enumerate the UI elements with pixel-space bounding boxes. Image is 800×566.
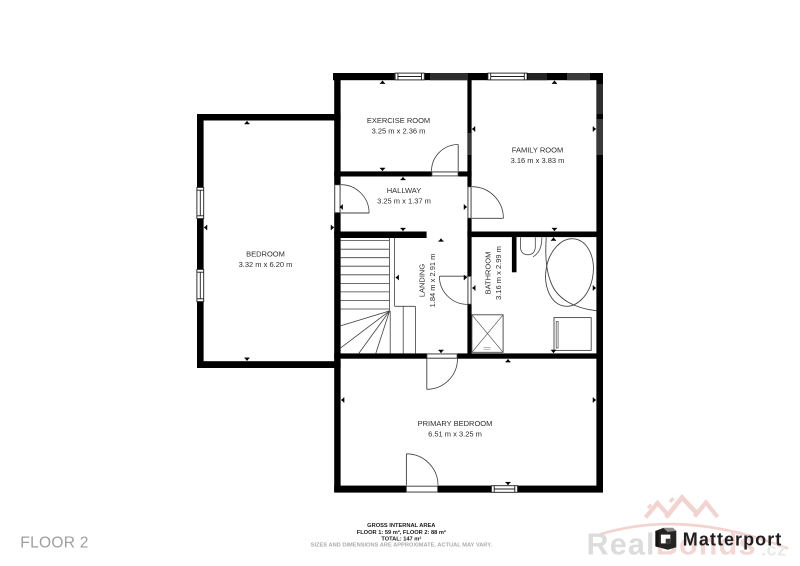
svg-text:BATHROOM: BATHROOM <box>484 252 493 295</box>
svg-text:HALLWAY: HALLWAY <box>387 186 421 195</box>
svg-text:FAMILY ROOM: FAMILY ROOM <box>512 146 563 155</box>
svg-text:3.16 m x 3.83 m: 3.16 m x 3.83 m <box>511 156 565 165</box>
svg-text:EXERCISE ROOM: EXERCISE ROOM <box>367 116 430 125</box>
svg-text:3.32 m x 6.20 m: 3.32 m x 6.20 m <box>239 260 293 269</box>
svg-text:Matterport: Matterport <box>683 529 783 549</box>
svg-text:3.25 m x 1.37 m: 3.25 m x 1.37 m <box>377 197 431 206</box>
svg-text:GROSS INTERNAL AREA: GROSS INTERNAL AREA <box>367 523 435 529</box>
svg-text:6.51 m x 3.25 m: 6.51 m x 3.25 m <box>428 430 482 439</box>
svg-text:PRIMARY BEDROOM: PRIMARY BEDROOM <box>418 419 493 428</box>
svg-text:FLOOR 1: 59 m², FLOOR 2: 88 m²: FLOOR 1: 59 m², FLOOR 2: 88 m² <box>357 529 446 536</box>
svg-text:LANDING: LANDING <box>418 264 427 298</box>
svg-text:SIZES AND DIMENSIONS ARE APPRO: SIZES AND DIMENSIONS ARE APPROXIMATE, AC… <box>311 542 493 548</box>
svg-text:FLOOR 2: FLOOR 2 <box>20 535 88 552</box>
svg-text:1.84 m x 2.91 m: 1.84 m x 2.91 m <box>428 254 437 308</box>
svg-text:BEDROOM: BEDROOM <box>246 250 285 259</box>
svg-text:3.16 m x 2.99 m: 3.16 m x 2.99 m <box>494 246 503 300</box>
svg-text:3.25 m x 2.36 m: 3.25 m x 2.36 m <box>372 127 426 136</box>
